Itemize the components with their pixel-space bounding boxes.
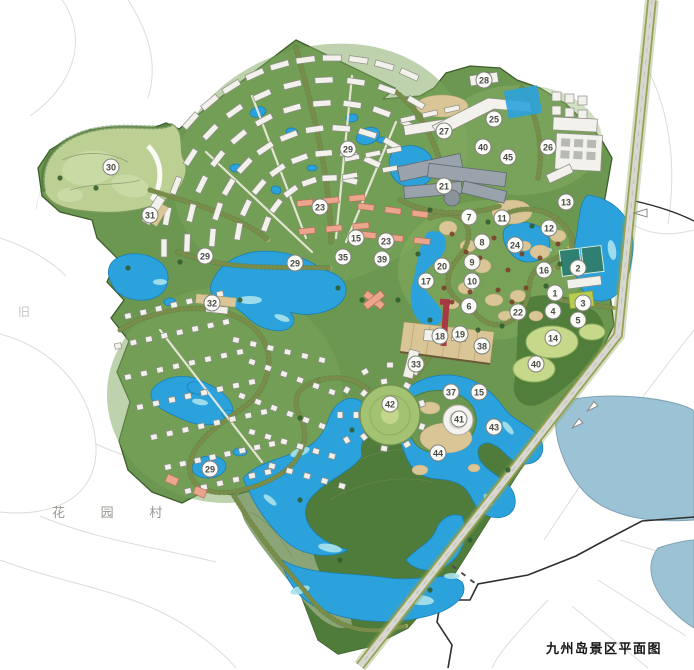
svg-text:5: 5: [575, 316, 580, 326]
svg-text:7: 7: [466, 213, 471, 223]
map-marker-10: 10: [464, 273, 480, 289]
building-block: [315, 77, 333, 84]
svg-text:18: 18: [435, 332, 445, 342]
building-block: [380, 378, 387, 385]
building-block: [182, 426, 190, 433]
building-block: [140, 309, 148, 316]
site-plan-map: 3031292825274045262113711122315238243539…: [0, 0, 694, 670]
svg-text:23: 23: [381, 237, 391, 247]
tree-icon: [510, 300, 515, 305]
svg-text:32: 32: [207, 299, 217, 309]
svg-text:29: 29: [290, 259, 300, 269]
building-block: [387, 362, 394, 368]
building-block: [318, 357, 326, 364]
building-block: [191, 325, 199, 332]
map-marker-9: 9: [464, 254, 480, 270]
tree-icon: [442, 286, 447, 291]
building-block: [124, 313, 132, 320]
svg-text:9: 9: [469, 258, 474, 268]
building-block: [322, 175, 337, 182]
tree-icon: [496, 288, 501, 293]
building-block: [184, 234, 191, 252]
tree-icon: [427, 317, 432, 322]
map-marker-5: 5: [570, 312, 586, 328]
map-marker-26: 26: [540, 139, 556, 155]
svg-text:38: 38: [477, 342, 487, 352]
map-marker-14: 14: [545, 330, 561, 346]
svg-text:19: 19: [455, 330, 465, 340]
tree-icon: [349, 427, 354, 432]
svg-text:21: 21: [439, 182, 449, 192]
map-marker-29: 29: [202, 461, 218, 477]
tree-icon: [177, 259, 182, 264]
building-block: [224, 450, 232, 457]
building-block: [209, 454, 217, 461]
map-title: 九州岛景区平面图: [545, 641, 662, 656]
tree-icon: [520, 252, 525, 257]
svg-text:4: 4: [550, 307, 555, 317]
map-marker-6: 6: [461, 298, 477, 314]
tree-icon: [464, 250, 469, 255]
tree-icon: [475, 327, 480, 332]
building-block: [150, 434, 158, 441]
svg-text:2: 2: [575, 264, 580, 274]
building-block: [184, 393, 192, 400]
svg-text:29: 29: [343, 145, 353, 155]
building-block: [164, 464, 172, 471]
sand-pad: [529, 311, 543, 321]
building-block: [209, 228, 217, 246]
map-marker-23: 23: [312, 199, 328, 215]
map-marker-17: 17: [418, 273, 434, 289]
tree-icon: [359, 297, 364, 302]
tree-icon: [450, 300, 455, 305]
building-block: [145, 336, 153, 343]
shallow-water: [444, 573, 460, 579]
building-block: [161, 239, 167, 257]
tree-icon: [468, 290, 473, 295]
svg-text:15: 15: [474, 388, 484, 398]
building-block: [232, 476, 240, 483]
map-marker-12: 12: [541, 220, 557, 236]
building-block: [140, 370, 148, 377]
building-block: [353, 222, 369, 229]
map-marker-15: 15: [471, 384, 487, 400]
building-block: [337, 412, 343, 419]
map-marker-41: 41: [451, 411, 467, 427]
map-marker-13: 13: [558, 194, 574, 210]
garden-circle-42: [360, 385, 420, 445]
tree-icon: [556, 242, 561, 247]
map-marker-31: 31: [142, 207, 158, 223]
building-block: [349, 194, 366, 202]
building-block: [315, 150, 332, 157]
building-block: [245, 412, 253, 419]
map-marker-18: 18: [432, 328, 448, 344]
svg-text:3: 3: [580, 299, 585, 309]
map-marker-35: 35: [335, 249, 351, 265]
pond: [307, 165, 317, 171]
map-marker-29: 29: [340, 141, 356, 157]
sand-pad: [412, 465, 428, 475]
svg-text:12: 12: [544, 224, 554, 234]
map-marker-40: 40: [475, 139, 491, 155]
tree-icon: [297, 415, 302, 420]
map-marker-16: 16: [536, 262, 552, 278]
building-block: [229, 416, 237, 423]
svg-text:30: 30: [106, 163, 116, 173]
map-marker-19: 19: [452, 326, 468, 342]
plan-canvas: 3031292825274045262113711122315238243539…: [0, 0, 694, 670]
building-block: [161, 332, 169, 339]
map-marker-2: 2: [570, 260, 586, 276]
building-block: [194, 457, 202, 464]
tree-icon: [499, 323, 504, 328]
tree-icon: [467, 537, 472, 542]
svg-text:42: 42: [385, 400, 395, 410]
map-marker-7: 7: [461, 209, 477, 225]
map-marker-30: 30: [103, 159, 119, 175]
map-marker-37: 37: [443, 384, 459, 400]
building-block: [216, 386, 224, 393]
svg-text:35: 35: [338, 253, 348, 263]
building-block: [172, 363, 180, 370]
tree-icon: [395, 297, 400, 302]
tree-icon: [485, 219, 490, 224]
tree-icon: [57, 175, 62, 180]
map-marker-25: 25: [486, 111, 502, 127]
svg-text:44: 44: [433, 449, 443, 459]
building-block: [136, 404, 144, 411]
svg-text:24: 24: [510, 241, 520, 251]
svg-text:8: 8: [479, 238, 484, 248]
building-block: [207, 322, 215, 329]
building-block: [239, 447, 247, 454]
tree-icon: [506, 268, 511, 273]
sand-pad: [468, 464, 480, 472]
building-block: [301, 353, 309, 360]
map-marker-21: 21: [436, 178, 452, 194]
tree-icon: [237, 297, 242, 302]
map-marker-40: 40: [528, 356, 544, 372]
map-marker-43: 43: [486, 419, 502, 435]
building-block: [249, 341, 257, 348]
building-block: [297, 199, 314, 207]
svg-text:40: 40: [478, 143, 488, 153]
svg-text:13: 13: [561, 198, 571, 208]
svg-text:39: 39: [377, 255, 387, 265]
svg-text:16: 16: [539, 266, 549, 276]
building-block: [232, 337, 240, 344]
building-block: [260, 409, 268, 416]
svg-text:22: 22: [513, 308, 523, 318]
building-block: [155, 305, 163, 312]
building-block: [284, 349, 292, 356]
tree-icon: [337, 557, 342, 562]
svg-text:6: 6: [466, 302, 471, 312]
tree-icon: [505, 467, 510, 472]
svg-text:45: 45: [503, 153, 513, 163]
sand-pad: [439, 221, 457, 235]
map-marker-44: 44: [430, 445, 446, 461]
svg-text:11: 11: [497, 214, 507, 224]
map-marker-45: 45: [500, 149, 516, 165]
svg-text:31: 31: [145, 211, 155, 221]
map-marker-20: 20: [434, 258, 450, 274]
building-block: [267, 345, 275, 352]
svg-text:41: 41: [454, 415, 464, 425]
building-block: [380, 445, 387, 452]
building-block: [248, 379, 256, 386]
building-block: [179, 460, 187, 467]
building-block: [170, 302, 178, 309]
building-block: [216, 480, 224, 487]
building-block: [232, 382, 240, 389]
building-block: [156, 366, 164, 373]
village-label: 花 园 村: [52, 505, 178, 520]
svg-text:43: 43: [489, 423, 499, 433]
map-marker-4: 4: [545, 303, 561, 319]
building-block: [414, 237, 431, 245]
tree-icon: [543, 283, 548, 288]
svg-text:20: 20: [437, 262, 447, 272]
svg-text:14: 14: [548, 334, 558, 344]
svg-text:33: 33: [411, 360, 421, 370]
svg-text:37: 37: [446, 388, 456, 398]
tree-icon: [297, 497, 302, 502]
tree-icon: [524, 286, 529, 291]
building-block: [253, 444, 261, 451]
map-marker-29: 29: [287, 255, 303, 271]
building-block: [197, 423, 205, 430]
building-block: [166, 430, 174, 437]
building-block: [220, 352, 228, 359]
map-marker-33: 33: [408, 356, 424, 372]
tree-icon: [492, 236, 497, 241]
pool: [504, 85, 542, 118]
building-block: [204, 356, 212, 363]
building-block: [184, 488, 192, 495]
tree-icon: [538, 256, 543, 261]
tree-icon: [415, 251, 420, 256]
map-marker-24: 24: [507, 237, 523, 253]
sand-pad: [485, 294, 503, 306]
map-marker-27: 27: [436, 123, 452, 139]
tree-icon: [557, 261, 562, 266]
building-block: [200, 389, 208, 396]
building-block: [188, 359, 196, 366]
tree-icon: [450, 232, 455, 237]
building-block: [332, 125, 350, 132]
map-marker-42: 42: [382, 396, 398, 412]
tree-icon: [335, 285, 340, 290]
building-block: [130, 339, 138, 346]
building-block: [353, 412, 359, 419]
map-marker-23: 23: [378, 233, 394, 249]
map-marker-39: 39: [374, 251, 390, 267]
map-marker-22: 22: [510, 304, 526, 320]
svg-text:27: 27: [439, 127, 449, 137]
svg-text:28: 28: [479, 76, 489, 86]
map-marker-15: 15: [348, 230, 364, 246]
building-block: [222, 319, 230, 326]
map-marker-8: 8: [474, 234, 490, 250]
building-block: [186, 298, 194, 305]
map-marker-11: 11: [494, 210, 510, 226]
building-block: [114, 343, 122, 350]
tree-icon: [93, 185, 98, 190]
building-block: [268, 441, 276, 448]
svg-text:23: 23: [315, 203, 325, 213]
svg-text:10: 10: [467, 277, 477, 287]
shallow-water: [153, 279, 167, 285]
map-marker-3: 3: [575, 295, 591, 311]
building-block: [152, 400, 160, 407]
tree-icon: [427, 587, 432, 592]
map-marker-32: 32: [204, 295, 220, 311]
map-marker-38: 38: [474, 338, 490, 354]
building-block: [176, 329, 184, 336]
building-block: [168, 396, 176, 403]
tree-icon: [529, 223, 534, 228]
svg-text:40: 40: [531, 360, 541, 370]
svg-text:29: 29: [200, 252, 210, 262]
building-block: [326, 225, 342, 232]
building-block: [313, 100, 331, 107]
building-block: [124, 374, 132, 381]
building-block: [213, 419, 221, 426]
svg-text:29: 29: [205, 465, 215, 475]
svg-text:15: 15: [351, 234, 361, 244]
building-block: [323, 55, 342, 61]
svg-text:17: 17: [421, 277, 431, 287]
building-block: [299, 227, 315, 234]
edge-place-label: 旧: [18, 305, 30, 319]
map-marker-29: 29: [197, 248, 213, 264]
building-block: [264, 469, 272, 476]
svg-text:1: 1: [552, 289, 557, 299]
svg-text:26: 26: [543, 143, 553, 153]
tree-icon: [427, 207, 432, 212]
svg-text:25: 25: [489, 115, 499, 125]
map-marker-1: 1: [547, 285, 563, 301]
building-block: [248, 472, 256, 479]
building-block: [236, 349, 244, 356]
tree-icon: [125, 265, 130, 270]
map-marker-28: 28: [476, 72, 492, 88]
